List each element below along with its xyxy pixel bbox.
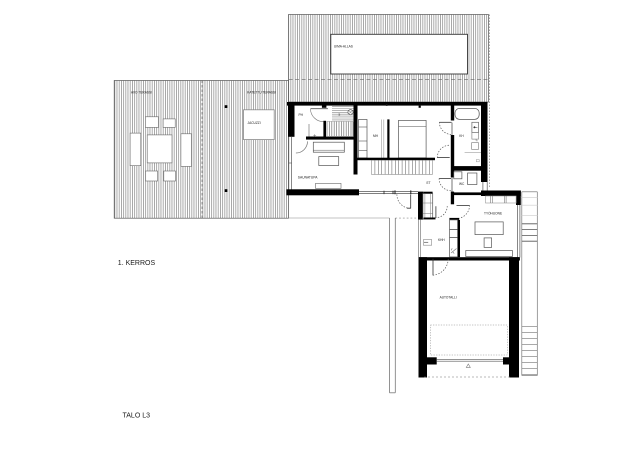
svg-text:AUTOTALLI: AUTOTALLI	[440, 295, 457, 299]
svg-text:TALO L3: TALO L3	[123, 413, 151, 420]
svg-text:1. KERROS: 1. KERROS	[118, 260, 156, 267]
svg-text:KH: KH	[459, 134, 464, 138]
svg-text:WC: WC	[459, 182, 465, 186]
svg-text:ET: ET	[427, 181, 431, 185]
svg-text:UIMA-ALLAS: UIMA-ALLAS	[334, 44, 353, 48]
svg-text:JACUZZI: JACUZZI	[248, 121, 261, 125]
svg-text:MH: MH	[373, 134, 379, 138]
svg-text:KATETTU TERASSI: KATETTU TERASSI	[247, 91, 276, 95]
svg-text:S: S	[338, 112, 340, 116]
svg-text:TYÖHUONE: TYÖHUONE	[484, 212, 502, 216]
svg-text:KHH: KHH	[438, 238, 445, 242]
svg-text:PH: PH	[299, 113, 304, 117]
svg-text:AVO TERASSI: AVO TERASSI	[131, 91, 152, 95]
svg-text:SAUNATUPA: SAUNATUPA	[298, 176, 318, 180]
